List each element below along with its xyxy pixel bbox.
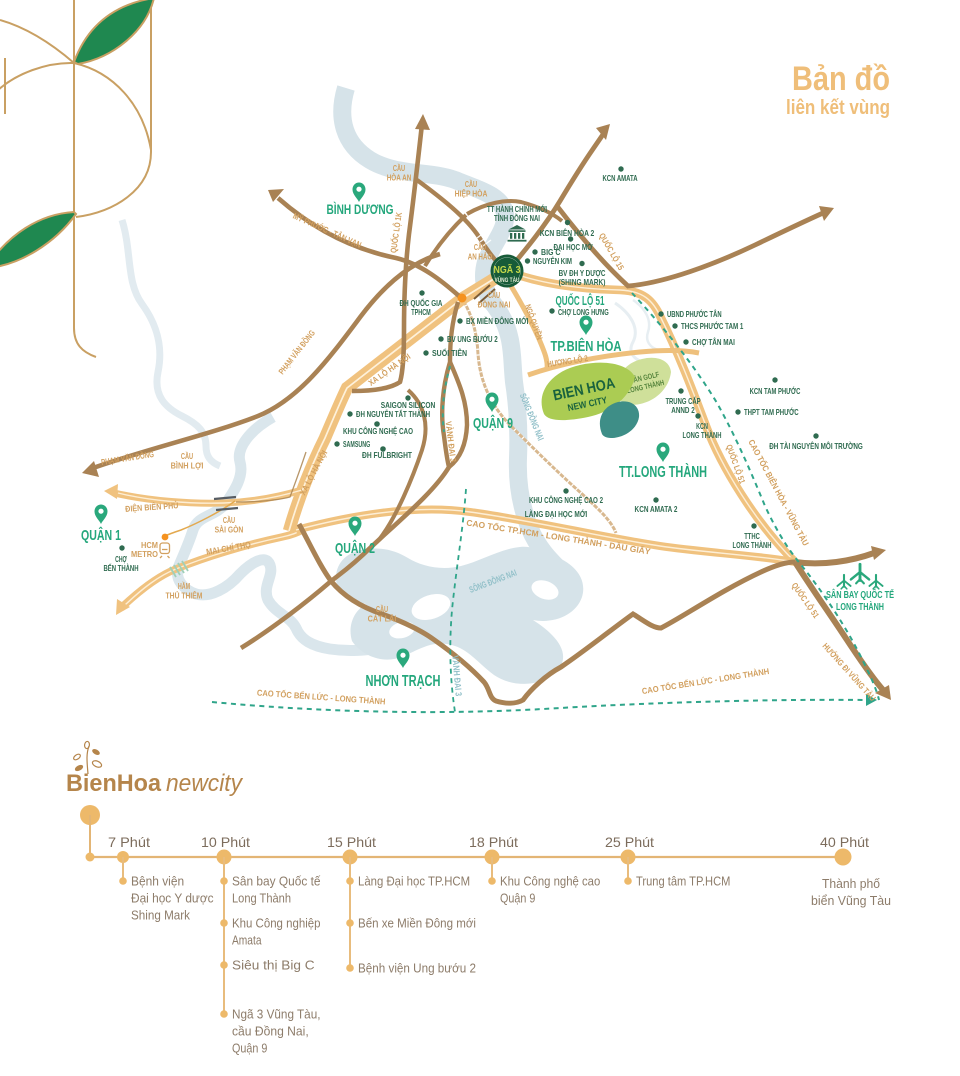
svg-text:ĐỒNG NAI: ĐỒNG NAI (478, 299, 511, 310)
svg-text:Khu Công nghiệp: Khu Công nghiệp (232, 917, 321, 931)
svg-text:HIỆP HÒA: HIỆP HÒA (455, 188, 488, 199)
svg-text:KCN TAM PHƯỚC: KCN TAM PHƯỚC (750, 385, 801, 396)
svg-text:KCN AMATA: KCN AMATA (602, 174, 637, 183)
svg-text:TỈNH ĐỒNG NAI: TỈNH ĐỒNG NAI (494, 212, 540, 223)
svg-text:CHỢ TÂN MAI: CHỢ TÂN MAI (692, 336, 735, 347)
svg-text:25 Phút: 25 Phút (605, 834, 654, 850)
svg-text:KCN AMATA 2: KCN AMATA 2 (635, 505, 678, 514)
svg-text:CHỢ: CHỢ (115, 555, 127, 564)
svg-text:BẾN THÀNH: BẾN THÀNH (103, 563, 138, 573)
svg-text:(SHING MARK): (SHING MARK) (559, 278, 606, 287)
svg-text:LONG THÀNH: LONG THÀNH (836, 600, 884, 613)
svg-text:Bến xe Miền Đông mới: Bến xe Miền Đông mới (358, 917, 476, 931)
svg-text:LONG THÀNH: LONG THÀNH (683, 430, 722, 440)
svg-text:LÀNG ĐẠI HỌC MỚI: LÀNG ĐẠI HỌC MỚI (525, 508, 587, 519)
svg-text:LONG THÀNH: LONG THÀNH (733, 540, 772, 550)
svg-text:KHU CÔNG NGHỆ CAO 2: KHU CÔNG NGHỆ CAO 2 (529, 494, 603, 505)
svg-text:QUẬN 9: QUẬN 9 (473, 414, 513, 432)
svg-text:CẦU: CẦU (393, 163, 405, 173)
svg-text:NGUYỄN KIM: NGUYỄN KIM (533, 255, 572, 266)
svg-text:Ngã 3 Vũng Tàu,: Ngã 3 Vũng Tàu, (232, 1008, 321, 1022)
svg-text:Bệnh viện: Bệnh viện (131, 875, 184, 889)
svg-text:KCN BIÊN HÒA 2: KCN BIÊN HÒA 2 (540, 227, 595, 238)
svg-text:TTHC: TTHC (744, 532, 760, 541)
svg-text:SAIGON SILICON: SAIGON SILICON (381, 401, 436, 410)
svg-text:CẦU: CẦU (376, 604, 388, 614)
svg-text:Amata: Amata (232, 934, 262, 948)
svg-text:Quận 9: Quận 9 (500, 892, 535, 906)
svg-text:ĐH TÀI NGUYÊN MÔI TRƯỜNG: ĐH TÀI NGUYÊN MÔI TRƯỜNG (769, 440, 863, 451)
svg-text:CẦU: CẦU (223, 515, 235, 525)
svg-text:Đại học Y dược: Đại học Y dược (131, 892, 214, 906)
svg-text:SUỐI TIÊN: SUỐI TIÊN (432, 347, 467, 358)
svg-text:Sân bay Quốc tế: Sân bay Quốc tế (232, 875, 321, 889)
svg-text:NGÃ 3: NGÃ 3 (494, 263, 521, 276)
svg-text:cầu Đồng Nai,: cầu Đồng Nai, (232, 1025, 309, 1039)
svg-text:10 Phút: 10 Phút (201, 834, 250, 850)
svg-text:Bản đồ: Bản đồ (792, 60, 890, 98)
svg-text:NHƠN TRẠCH: NHƠN TRẠCH (366, 673, 441, 690)
svg-text:KCN: KCN (696, 422, 708, 431)
svg-text:CẦU: CẦU (465, 179, 477, 189)
svg-text:Bệnh viện Ung bướu 2: Bệnh viện Ung bướu 2 (358, 962, 476, 976)
svg-text:Trung tâm TP.HCM: Trung tâm TP.HCM (636, 875, 730, 889)
svg-text:KHU CÔNG NGHỆ CAO: KHU CÔNG NGHỆ CAO (343, 425, 413, 436)
svg-text:40 Phút: 40 Phút (820, 834, 869, 850)
svg-text:AN HẢO: AN HẢO (468, 251, 493, 262)
svg-text:METRO: METRO (131, 549, 158, 559)
svg-text:CẦU: CẦU (488, 290, 500, 300)
svg-text:TT HÀNH CHÍNH MỚI: TT HÀNH CHÍNH MỚI (487, 203, 547, 214)
svg-text:18 Phút: 18 Phút (469, 834, 518, 850)
svg-text:CHỢ LONG HƯNG: CHỢ LONG HƯNG (558, 308, 609, 317)
svg-text:ĐH NGUYỄN TẤT THÀNH: ĐH NGUYỄN TẤT THÀNH (356, 408, 430, 419)
svg-text:BÌNH DƯƠNG: BÌNH DƯƠNG (327, 202, 394, 217)
svg-text:HẦM: HẦM (178, 581, 190, 591)
svg-text:QUẬN 1: QUẬN 1 (81, 526, 121, 544)
svg-text:Shing Mark: Shing Mark (131, 909, 191, 923)
svg-text:CẦU: CẦU (474, 242, 486, 252)
svg-text:SÂN BAY QUỐC TẾ: SÂN BAY QUỐC TẾ (826, 587, 894, 601)
svg-text:Làng Đại học TP.HCM: Làng Đại học TP.HCM (358, 875, 470, 889)
svg-text:liên kết vùng: liên kết vùng (786, 97, 890, 119)
svg-text:15 Phút: 15 Phút (327, 834, 376, 850)
svg-text:ANND 2: ANND 2 (671, 406, 695, 415)
svg-text:QUẬN 2: QUẬN 2 (335, 539, 375, 557)
svg-text:BX MIỀN ĐÔNG MỚI: BX MIỀN ĐÔNG MỚI (466, 315, 528, 326)
svg-text:TRUNG CẤP: TRUNG CẤP (665, 396, 700, 406)
svg-text:THỦ THIÊM: THỦ THIÊM (166, 590, 203, 601)
svg-text:TT.LONG THÀNH: TT.LONG THÀNH (619, 464, 707, 481)
svg-text:7 Phút: 7 Phút (108, 834, 150, 850)
svg-text:CÁT LÁI: CÁT LÁI (368, 614, 397, 624)
svg-text:Thành phố: Thành phố (822, 877, 880, 891)
svg-text:Siêu thị Big C: Siêu thị Big C (232, 959, 315, 973)
svg-text:Khu Công nghệ cao: Khu Công nghệ cao (500, 875, 600, 889)
svg-text:BV UNG BƯỚU 2: BV UNG BƯỚU 2 (447, 333, 498, 344)
svg-text:Quận 9: Quận 9 (232, 1042, 267, 1056)
svg-text:ĐH QUỐC GIA: ĐH QUỐC GIA (400, 297, 443, 308)
svg-text:BienHoa: BienHoa (66, 770, 161, 797)
svg-text:QUỐC LỘ 51: QUỐC LỘ 51 (556, 293, 605, 308)
svg-text:SÀI GÒN: SÀI GÒN (215, 524, 244, 535)
svg-text:BIG C: BIG C (541, 248, 561, 257)
svg-text:VÙNG TÀU: VÙNG TÀU (495, 277, 520, 284)
svg-text:ĐH FULBRIGHT: ĐH FULBRIGHT (362, 451, 412, 460)
svg-text:SAMSUNG: SAMSUNG (343, 440, 370, 449)
svg-text:THCS PHƯỚC TAM 1: THCS PHƯỚC TAM 1 (681, 320, 744, 331)
svg-text:Long Thành: Long Thành (232, 892, 291, 906)
svg-text:THPT TAM PHƯỚC: THPT TAM PHƯỚC (744, 406, 799, 417)
svg-text:HÒA AN: HÒA AN (387, 172, 412, 183)
svg-text:TPHCM: TPHCM (411, 308, 431, 317)
svg-text:UBND PHƯỚC TÂN: UBND PHƯỚC TÂN (667, 308, 722, 319)
svg-text:BV ĐH Y DƯỢC: BV ĐH Y DƯỢC (559, 269, 606, 278)
svg-text:biển Vũng Tàu: biển Vũng Tàu (811, 894, 891, 908)
svg-text:BÌNH LỢI: BÌNH LỢI (171, 461, 204, 471)
svg-text:CẦU: CẦU (181, 451, 193, 461)
svg-text:newcity: newcity (166, 770, 244, 797)
